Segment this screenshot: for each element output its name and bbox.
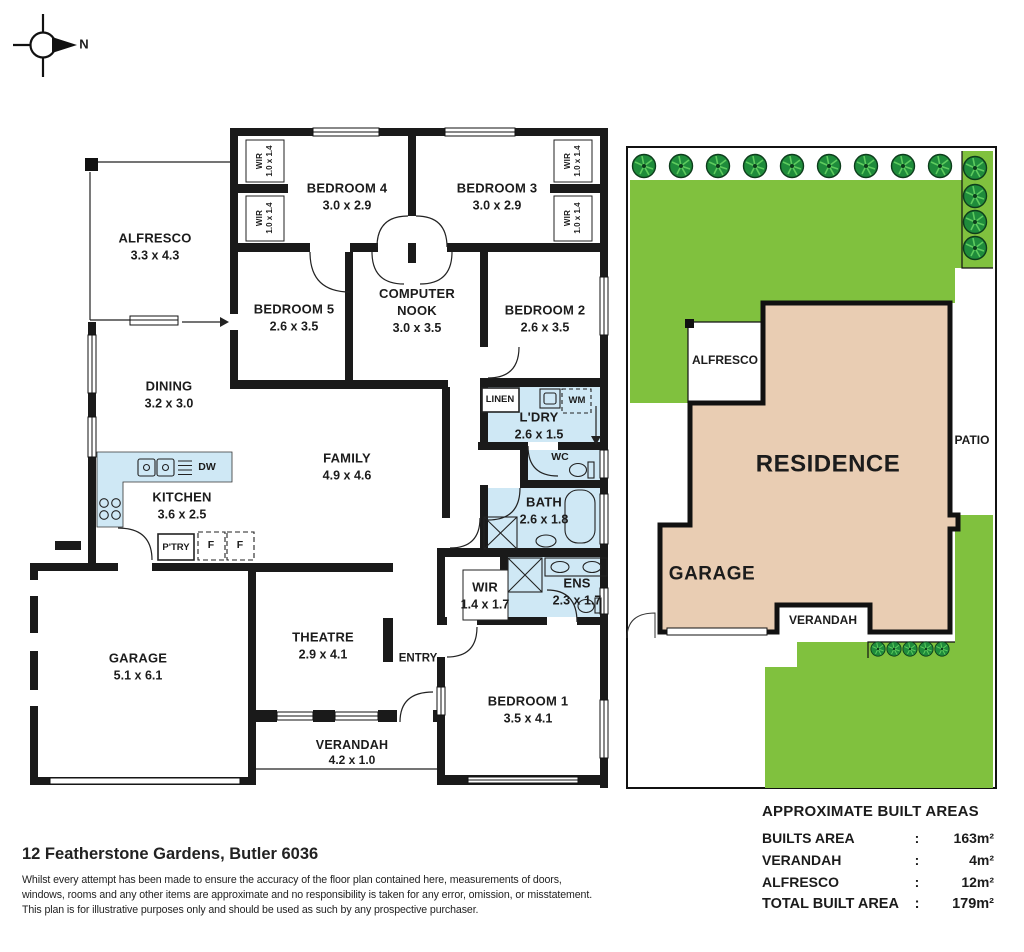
window-bed1-left <box>437 687 445 715</box>
wm-label: WM <box>569 395 586 407</box>
built-areas-panel: APPROXIMATE BUILT AREAS BUILTS AREA : 16… <box>762 803 994 918</box>
window-dining-2 <box>88 417 96 457</box>
room-label-wir-bed1: WIR1.4 x 1.7 <box>461 579 510 612</box>
room-label-bedroom2: BEDROOM 22.6 x 3.5 <box>505 302 586 335</box>
dw-label: DW <box>198 461 216 475</box>
door-bedroom3 <box>416 216 447 247</box>
window-top-2 <box>445 128 515 136</box>
window-theatre-1 <box>277 712 313 720</box>
door-bedroom1 <box>447 627 477 657</box>
compass-icon <box>13 14 77 77</box>
door-nook-left <box>372 252 404 284</box>
room-label-dining: DINING3.2 x 3.0 <box>145 378 194 411</box>
window-top-1 <box>313 128 379 136</box>
wing-left-gap <box>230 314 238 330</box>
window-dining-1 <box>88 335 96 393</box>
door-nook-right <box>420 252 452 284</box>
room-label-ens: ENS2.3 x 1.7 <box>553 575 602 608</box>
door-garage-internal <box>118 528 152 560</box>
fridge-label-1: F <box>208 539 214 553</box>
room-label-verandah: VERANDAH4.2 x 1.0 <box>316 737 388 769</box>
room-label-computer-nook: COMPUTER NOOK3.0 x 3.5 <box>374 286 460 336</box>
garage-door <box>50 778 240 784</box>
built-areas-title: APPROXIMATE BUILT AREAS <box>762 803 994 820</box>
disclaimer-line-3: This plan is for illustrative purposes o… <box>22 903 622 918</box>
window-right-br2 <box>600 277 608 335</box>
window-alfresco-slider <box>130 316 178 325</box>
door-bedroom5 <box>310 252 350 292</box>
disclaimer-line-2: windows, rooms and any other items are a… <box>22 888 622 903</box>
footer: 12 Featherstone Gardens, Butler 6036 Whi… <box>22 845 622 918</box>
fridge-label-2: F <box>237 539 243 553</box>
room-label-alfresco: ALFRESCO3.3 x 4.3 <box>118 230 191 263</box>
wc-label: WC <box>551 451 569 465</box>
site-verandah-label: VERANDAH <box>789 613 857 629</box>
room-label-family: FAMILY4.9 x 4.6 <box>323 450 372 483</box>
disclaimer-line-1: Whilst every attempt has been made to en… <box>22 873 622 888</box>
door-bedroom2 <box>488 347 519 378</box>
window-bed1-bottom <box>468 777 578 783</box>
site-garage-label: GARAGE <box>669 563 755 588</box>
room-label-bedroom3: BEDROOM 33.0 x 2.9 <box>457 180 538 213</box>
site-garage-door <box>667 628 767 635</box>
built-area-row: ALFRESCO : 12m² <box>762 874 994 890</box>
door-hall <box>450 518 480 548</box>
wir-closet-label-c: WIR1.0 x 1.4 <box>563 145 583 176</box>
tree-column-right <box>964 185 987 260</box>
built-area-row: BUILTS AREA : 163m² <box>762 830 994 846</box>
tree-row-small <box>871 642 949 656</box>
pantry-label: P'TRY <box>162 542 189 554</box>
wir-closet-label-d: WIR1.0 x 1.4 <box>563 202 583 233</box>
window-right-bed1 <box>600 700 608 758</box>
room-label-bedroom1: BEDROOM 13.5 x 4.1 <box>488 693 569 726</box>
door-bedroom4 <box>377 216 408 247</box>
alfresco-arrow <box>182 317 229 327</box>
built-area-row: VERANDAH : 4m² <box>762 852 994 868</box>
window-right-wc <box>600 450 608 478</box>
room-label-bath: BATH2.6 x 1.8 <box>520 494 569 527</box>
room-label-theatre: THEATRE2.9 x 4.1 <box>292 629 354 662</box>
site-residence-label: RESIDENCE <box>756 448 901 479</box>
window-theatre-2 <box>335 712 378 720</box>
built-area-total-row: TOTAL BUILT AREA : 179m² <box>762 896 994 912</box>
property-address: 12 Featherstone Gardens, Butler 6036 <box>22 845 622 864</box>
linen-label: LINEN <box>486 394 515 406</box>
door-entry-front <box>400 692 433 722</box>
wir-closet-label-a: WIR1.0 x 1.4 <box>255 145 275 176</box>
garage-left-gap-1 <box>30 580 38 596</box>
room-label-bedroom5: BEDROOM 52.6 x 3.5 <box>254 301 335 334</box>
room-label-garage: GARAGE5.1 x 6.1 <box>109 650 167 683</box>
room-label-bedroom4: BEDROOM 43.0 x 2.9 <box>307 180 388 213</box>
site-alfresco-label: ALFRESCO <box>692 353 758 369</box>
room-label-laundry: L'DRY2.6 x 1.5 <box>515 409 564 442</box>
entry-label: ENTRY <box>399 652 438 667</box>
garage-left-gap-3 <box>30 690 38 706</box>
floor-plan-page: N ALFRESCO3.3 x 4.3 BEDROOM 43.0 x 2.9 B… <box>0 0 1024 952</box>
window-right-bath <box>600 494 608 544</box>
garage-left-gap-2 <box>30 633 38 651</box>
alfresco-post <box>85 158 98 171</box>
compass-n-label: N <box>79 37 88 54</box>
site-patio-label: PATIO <box>955 433 990 449</box>
room-label-kitchen: KITCHEN3.6 x 2.5 <box>152 489 211 522</box>
site-alfresco-post <box>685 319 694 328</box>
wir-closet-label-b: WIR1.0 x 1.4 <box>255 202 275 233</box>
